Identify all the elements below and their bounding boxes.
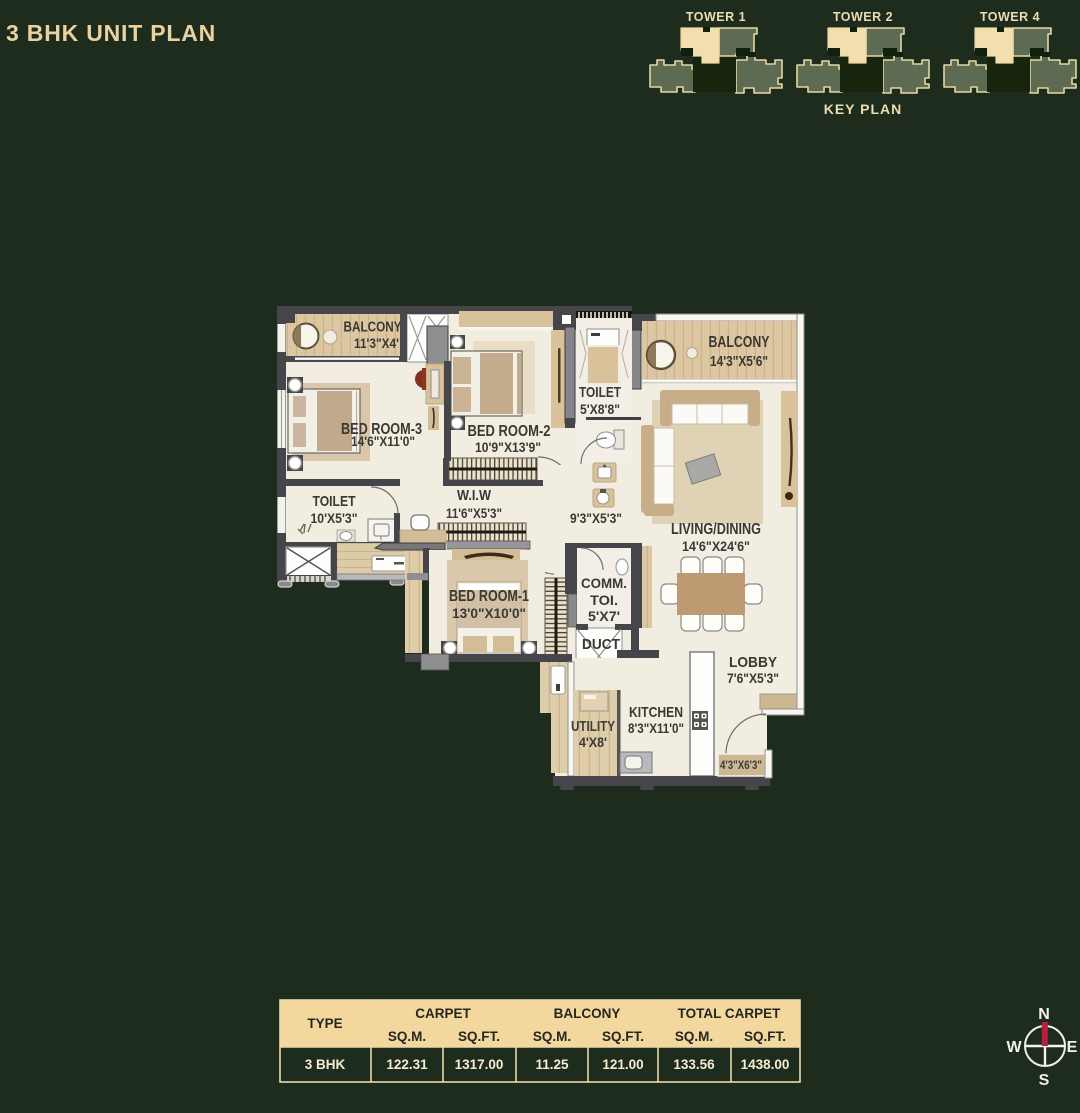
svg-text:SQ.FT.: SQ.FT. [744,1029,786,1044]
svg-text:4'X8': 4'X8' [579,734,607,750]
svg-text:BALCONY: BALCONY [344,320,402,336]
svg-text:TYPE: TYPE [307,1016,342,1031]
svg-text:121.00: 121.00 [602,1057,643,1072]
svg-text:122.31: 122.31 [386,1057,428,1072]
svg-text:SQ.M.: SQ.M. [533,1029,571,1044]
svg-text:TOTAL CARPET: TOTAL CARPET [678,1006,782,1021]
svg-text:11.25: 11.25 [535,1057,569,1072]
svg-text:SQ.M.: SQ.M. [388,1029,426,1044]
svg-text:14'3"X5'6": 14'3"X5'6" [710,354,768,370]
svg-text:E: E [1067,1039,1078,1056]
svg-text:S: S [1039,1072,1050,1089]
svg-text:KITCHEN: KITCHEN [629,704,683,721]
svg-text:SQ.FT.: SQ.FT. [602,1029,644,1044]
svg-text:10'X5'3": 10'X5'3" [311,510,358,526]
svg-text:14'6"X11'0": 14'6"X11'0" [351,433,415,449]
svg-text:TOWER 2: TOWER 2 [833,10,893,24]
svg-text:COMM.: COMM. [581,575,627,591]
svg-text:1317.00: 1317.00 [455,1057,504,1072]
svg-text:13'0"X10'0": 13'0"X10'0" [452,605,526,621]
svg-text:8'3"X11'0": 8'3"X11'0" [628,720,684,736]
svg-text:CARPET: CARPET [415,1006,471,1021]
svg-text:W: W [1006,1039,1022,1056]
svg-text:BED ROOM-2: BED ROOM-2 [468,423,551,440]
svg-text:SQ.FT.: SQ.FT. [458,1029,500,1044]
svg-text:LIVING/DINING: LIVING/DINING [671,521,761,538]
svg-text:SQ.M.: SQ.M. [675,1029,713,1044]
svg-text:UTILITY: UTILITY [571,719,615,735]
svg-text:KEY PLAN: KEY PLAN [824,101,903,117]
svg-text:9'3"X5'3": 9'3"X5'3" [570,510,622,526]
svg-text:11'6"X5'3": 11'6"X5'3" [446,505,502,521]
svg-text:TOWER 4: TOWER 4 [980,10,1040,24]
svg-text:W.I.W: W.I.W [457,487,492,504]
svg-text:5'X8'8": 5'X8'8" [580,401,620,417]
svg-text:7'6"X5'3": 7'6"X5'3" [727,670,779,686]
svg-text:14'6"X24'6": 14'6"X24'6" [682,538,750,554]
svg-text:10'9"X13'9": 10'9"X13'9" [475,439,541,455]
svg-text:TOILET: TOILET [579,384,621,401]
svg-text:BALCONY: BALCONY [554,1006,621,1021]
svg-text:133.56: 133.56 [673,1057,715,1072]
svg-text:3 BHK UNIT PLAN: 3 BHK UNIT PLAN [6,20,216,46]
svg-text:TOI.: TOI. [590,592,618,608]
svg-text:TOWER 1: TOWER 1 [686,10,746,24]
svg-text:5'X7': 5'X7' [588,608,620,624]
svg-text:DUCT: DUCT [582,637,620,653]
svg-text:1438.00: 1438.00 [741,1057,790,1072]
svg-text:BALCONY: BALCONY [709,334,771,351]
svg-text:3 BHK: 3 BHK [305,1057,346,1072]
svg-text:11'3"X4': 11'3"X4' [354,336,399,351]
svg-text:4'3"X6'3": 4'3"X6'3" [720,760,762,772]
svg-text:N: N [1038,1006,1050,1023]
svg-text:BED ROOM-1: BED ROOM-1 [449,588,529,605]
svg-text:TOILET: TOILET [313,493,356,510]
svg-text:LOBBY: LOBBY [729,654,777,671]
